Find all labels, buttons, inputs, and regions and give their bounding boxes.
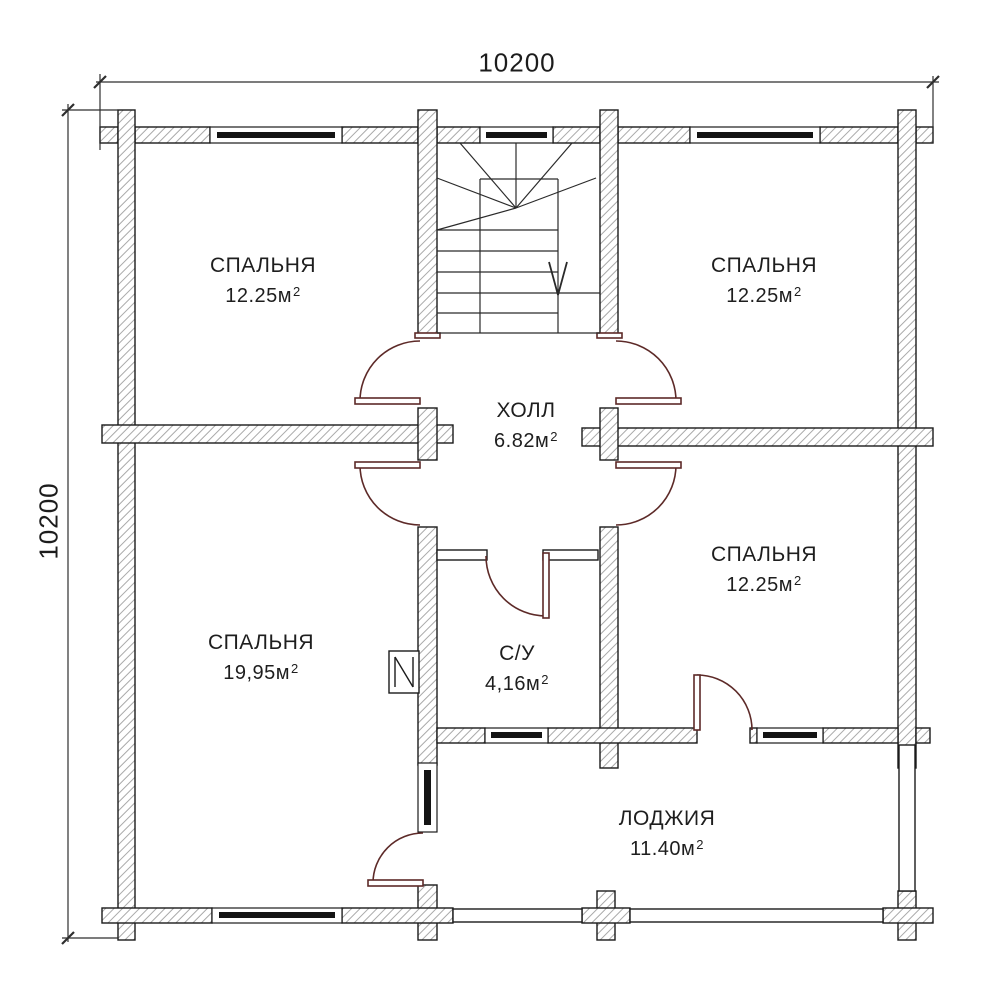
floor-plan-drawing [0,0,1000,1000]
room-area: 19,95м2 [208,656,314,686]
window-top-left [210,127,342,143]
floor-plan-canvas: 10200 10200 СПАЛЬНЯ 12.25м2 СПАЛЬНЯ 12.2… [0,0,1000,1000]
room-label-hall: ХОЛЛ 6.82м2 [494,398,558,454]
window-bedroom-loggia-bottom [757,728,823,743]
dimension-left-value: 10200 [34,482,65,559]
room-name: С/У [485,641,549,667]
room-label-bedroom-top-right: СПАЛЬНЯ 12.25м2 [711,253,817,309]
window-bottom-left [212,908,342,923]
dimension-lines [62,74,939,944]
room-name: ЛОДЖИЯ [619,806,716,832]
room-name: СПАЛЬНЯ [711,253,817,279]
room-label-bathroom: С/У 4,16м2 [485,641,549,697]
room-name: СПАЛЬНЯ [210,253,316,279]
staircase [437,143,600,333]
room-name: СПАЛЬНЯ [208,630,314,656]
door-bathroom [486,553,549,618]
room-area: 12.25м2 [711,279,817,309]
room-area: 12.25м2 [711,568,817,598]
door-hall-bottom-right [616,462,681,525]
door-bedroom-right-loggia [694,675,752,730]
room-area: 11.40м2 [619,832,716,862]
dimension-left [62,104,118,944]
room-label-bedroom-top-left: СПАЛЬНЯ 12.25м2 [210,253,316,309]
window-bathroom [485,728,548,743]
dimension-top-value: 10200 [478,48,555,79]
door-bedroom-left-loggia [368,833,423,886]
room-label-loggia: ЛОДЖИЯ 11.40м2 [619,806,716,862]
room-label-bedroom-mid-right: СПАЛЬНЯ 12.25м2 [711,542,817,598]
windows [210,127,823,923]
window-top-center [480,127,553,143]
door-hall-top-right [616,341,681,404]
door-hall-bottom-left [355,462,420,525]
room-area: 12.25м2 [210,279,316,309]
room-area: 6.82м2 [494,424,558,454]
window-top-right [690,127,820,143]
room-name: ХОЛЛ [494,398,558,424]
room-area: 4,16м2 [485,667,549,697]
walls-hatched [100,110,933,940]
vent-shaft-symbol [389,651,419,693]
room-label-bedroom-bottom-left: СПАЛЬНЯ 19,95м2 [208,630,314,686]
window-bedroom-loggia-side [418,763,437,832]
door-hall-top-left [355,341,420,404]
room-name: СПАЛЬНЯ [711,542,817,568]
